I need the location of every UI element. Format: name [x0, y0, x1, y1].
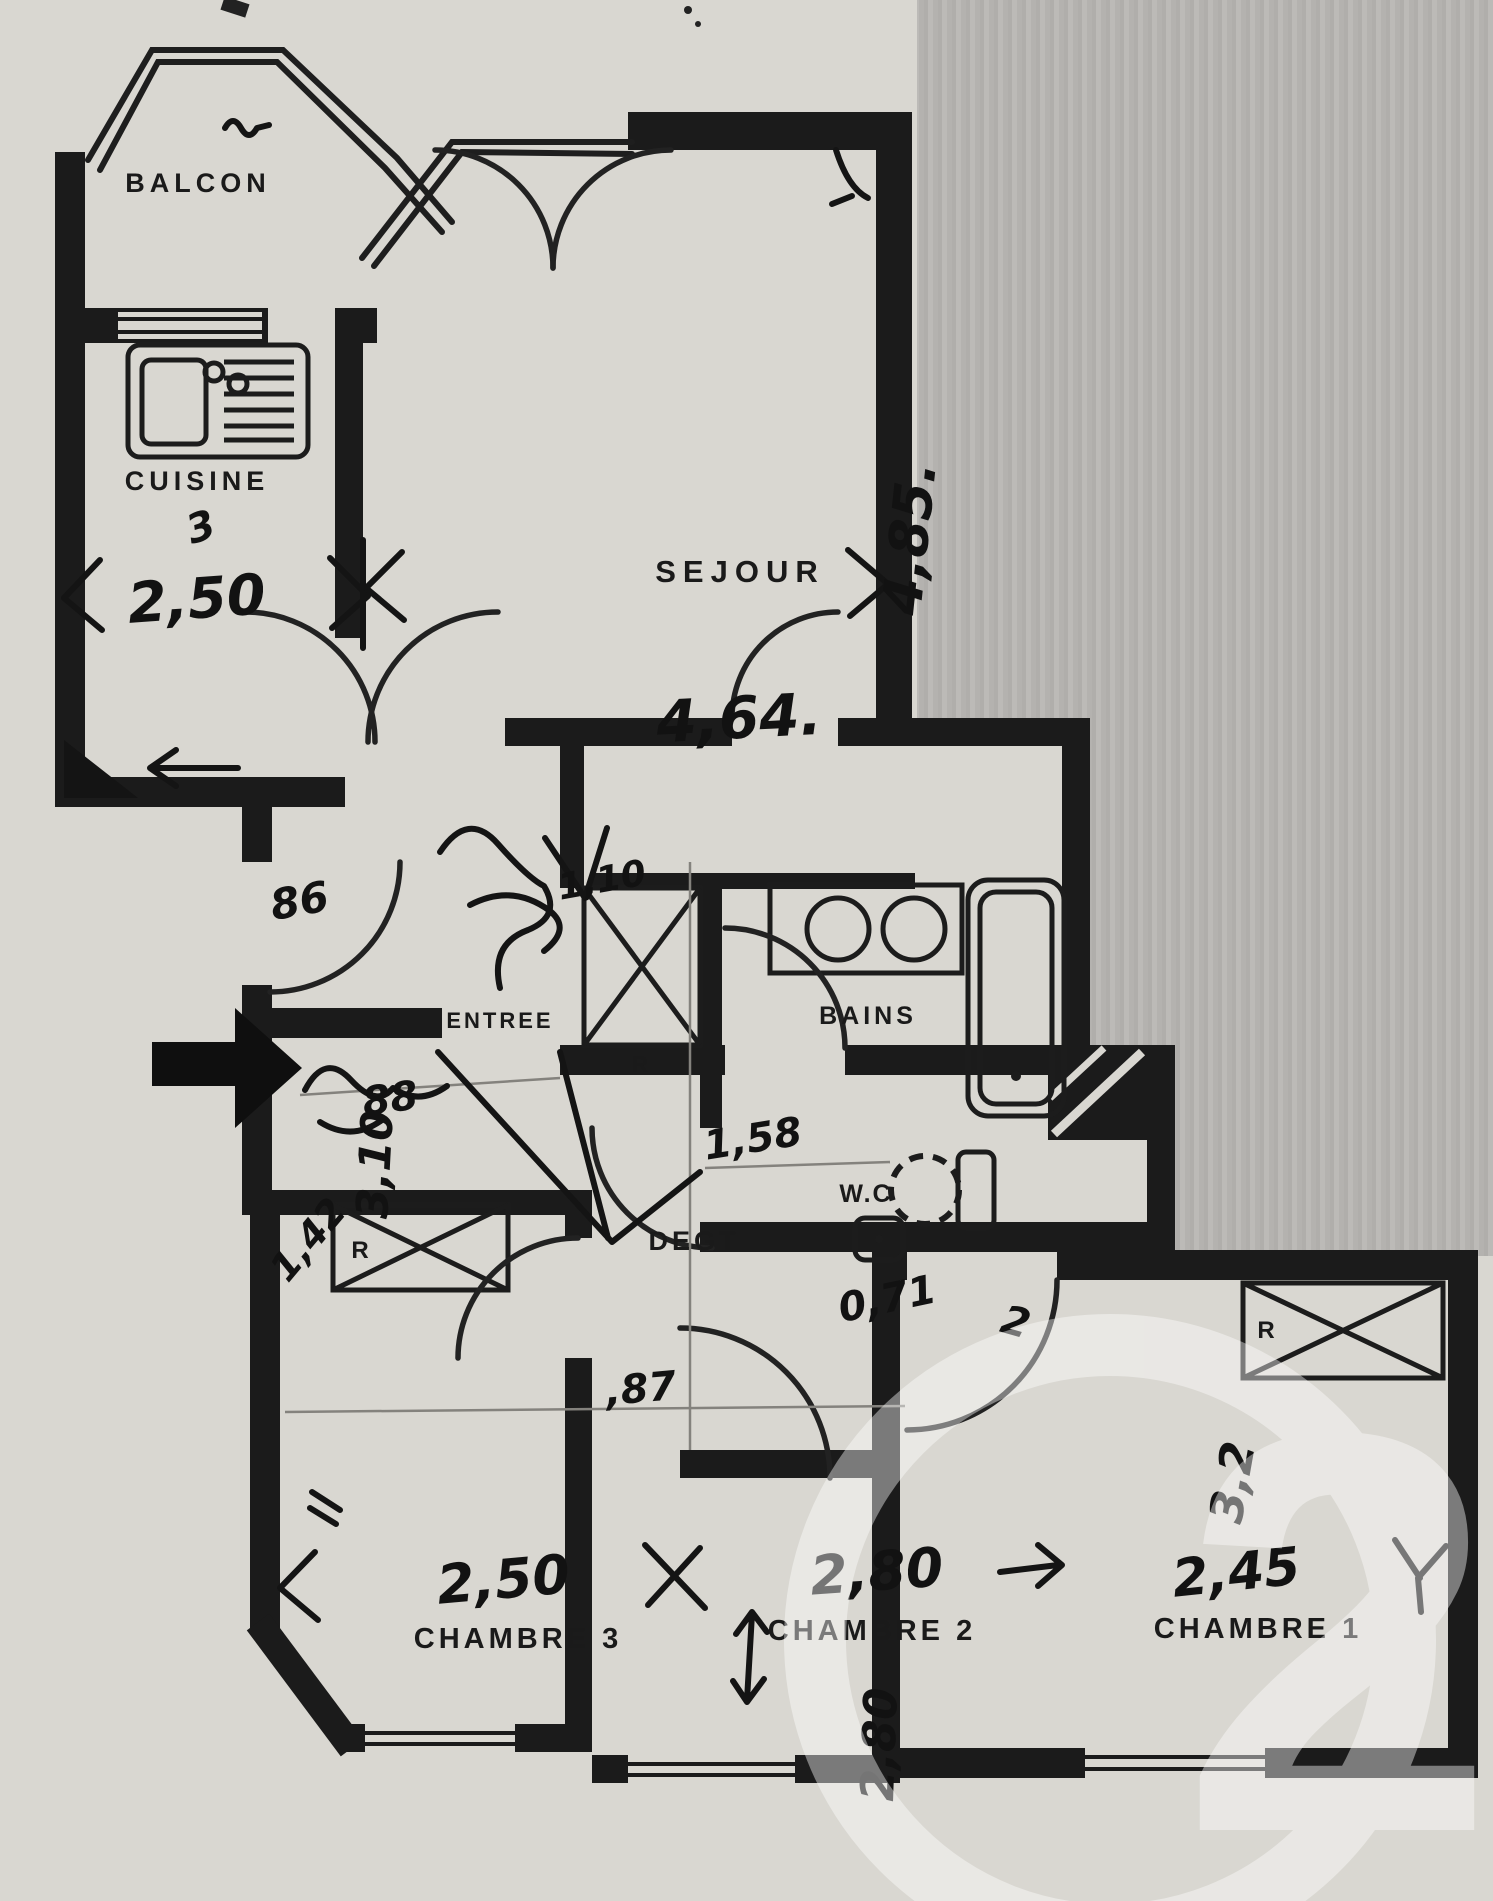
- room-label-degt: DEGT: [648, 1226, 739, 1256]
- note-86: 86: [266, 872, 332, 930]
- room-label-cuisine: CUISINE: [125, 466, 270, 496]
- note-88: 88: [359, 1072, 421, 1125]
- room-label-sejour: SEJOUR: [655, 554, 824, 589]
- dim-degagement-depth: 3,10: [347, 1109, 404, 1220]
- closet-label-r2: R: [351, 1237, 368, 1264]
- room-label-entree: ENTREE: [446, 1008, 553, 1033]
- closet-label-r1: R: [632, 1052, 648, 1077]
- note-87: ,87: [602, 1363, 679, 1415]
- room-label-balcon: BALCON: [125, 168, 271, 198]
- room-label-chambre3: CHAMBRE 3: [414, 1623, 622, 1655]
- dim-chambre3-width: 2,50: [434, 1542, 572, 1616]
- floor-plan-photo: BALCON CUISINE SEJOUR ENTREE BAINS W.C D…: [0, 0, 1493, 1901]
- room-label-wc: W.C: [839, 1180, 892, 1208]
- paper-dot: [695, 21, 701, 27]
- floor-plan: BALCON CUISINE SEJOUR ENTREE BAINS W.C D…: [0, 0, 1493, 1901]
- century21-digits: 21: [1180, 1314, 1493, 1901]
- dim-cuisine-width: 2,50: [126, 562, 268, 636]
- dim-sejour-width: 4,64.: [654, 680, 823, 757]
- room-label-bains: BAINS: [819, 1002, 917, 1030]
- paper-dot: [684, 6, 692, 14]
